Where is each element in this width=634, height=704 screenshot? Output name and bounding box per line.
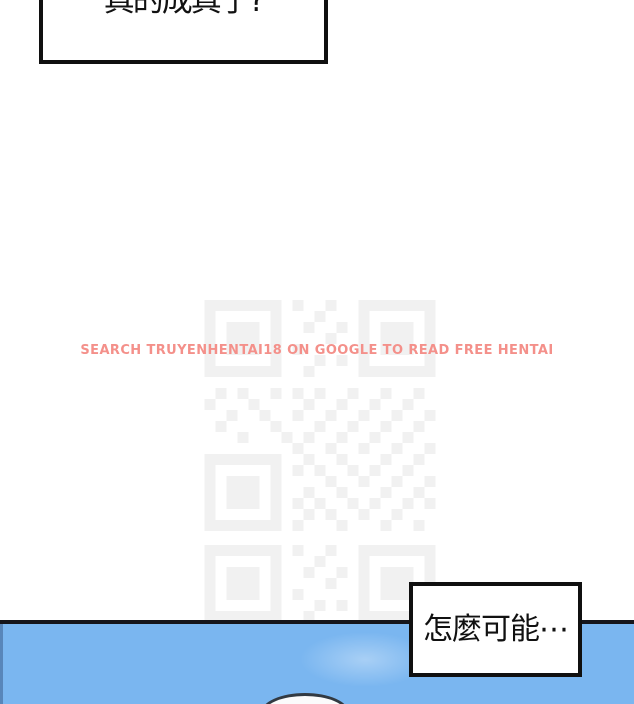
speech-bubble-bottom: 怎麼可能⋯ (409, 582, 582, 677)
comic-page: SEARCH TRUYENHENTAI18 ON GOOGLE TO READ … (0, 0, 634, 704)
qr-watermark-icon (203, 300, 437, 531)
panel-left-edge (0, 624, 3, 704)
watermark-text: SEARCH TRUYENHENTAI18 ON GOOGLE TO READ … (0, 343, 634, 358)
speech-bubble-top-text: 真的成真了? (43, 0, 324, 17)
speech-bubble-bottom-text: 怎麼可能⋯ (423, 615, 568, 645)
speech-bubble-top: 真的成真了? (39, 0, 328, 64)
